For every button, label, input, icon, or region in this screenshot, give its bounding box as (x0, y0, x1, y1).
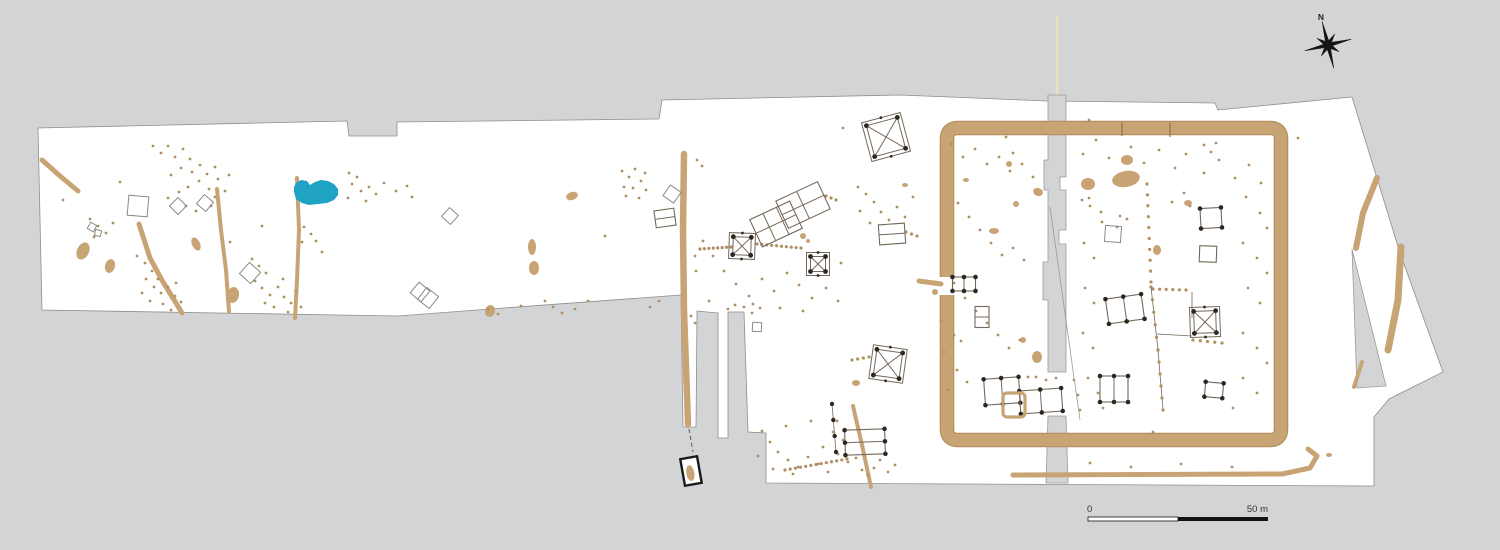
fence-dot (1147, 215, 1150, 218)
posthole-dot (315, 240, 318, 243)
post-dot (830, 402, 834, 406)
posthole-dot (1203, 144, 1206, 147)
pit (932, 289, 938, 295)
posthole-dot (625, 195, 628, 198)
structure-post-dot (823, 269, 828, 274)
posthole-dot (888, 219, 891, 222)
posthole-dot (1087, 377, 1090, 380)
posthole-dot (187, 186, 190, 189)
posthole-dot (552, 306, 555, 309)
posthole-dot (141, 292, 144, 295)
fence-dot (755, 242, 758, 245)
posthole-dot (842, 127, 845, 130)
posthole-dot (792, 473, 795, 476)
posthole-dot (708, 300, 711, 303)
fence-dot (1165, 288, 1168, 291)
posthole-dot (1101, 221, 1104, 224)
structure-post-dot (1098, 374, 1103, 379)
posthole-dot (604, 235, 607, 238)
posthole-dot (645, 189, 648, 192)
fence-dot (729, 245, 732, 248)
posthole-dot (1180, 463, 1183, 466)
fence-dot (1199, 339, 1202, 342)
posthole-dot (873, 201, 876, 204)
posthole-dot (206, 173, 209, 176)
posthole-dot (1021, 163, 1024, 166)
posthole-dot (1102, 407, 1105, 410)
fence-dot (1178, 288, 1181, 291)
posthole-dot (787, 459, 790, 462)
fence-dot (1220, 341, 1223, 344)
fence-dot (835, 459, 838, 462)
posthole-dot (224, 190, 227, 193)
posthole-dot (310, 233, 313, 236)
structure-post-dot (1126, 400, 1131, 405)
posthole-dot (979, 229, 982, 232)
posthole-dot (628, 176, 631, 179)
posthole-dot (119, 181, 122, 184)
posthole-dot (998, 156, 1001, 159)
posthole-dot (658, 300, 661, 303)
structure-post-dot (817, 274, 820, 277)
posthole-dot (1009, 170, 1012, 173)
posthole-dot (1143, 162, 1146, 165)
posthole-dot (497, 313, 500, 316)
posthole-dot (1093, 257, 1096, 260)
posthole-dot (199, 164, 202, 167)
posthole-dot (273, 306, 276, 309)
archaeological-site-plan: N 0 50 m (0, 0, 1500, 550)
posthole-dot (701, 165, 704, 168)
posthole-dot (761, 278, 764, 281)
posthole-dot (1092, 347, 1095, 350)
fence-dot (850, 358, 853, 361)
posthole-dot (1088, 119, 1091, 122)
scale-bar-white-segment (1088, 517, 1178, 521)
fence-dot (1148, 248, 1151, 251)
posthole-dot (950, 143, 953, 146)
fence-dot (840, 458, 843, 461)
fence-dot (1146, 204, 1149, 207)
fence-dot (795, 246, 798, 249)
fence-dot (799, 466, 802, 469)
pit (1006, 161, 1012, 167)
fence-dot (1160, 396, 1163, 399)
pit (529, 261, 539, 275)
posthole-dot (1119, 215, 1122, 218)
posthole-dot (544, 300, 547, 303)
posthole-dot (170, 174, 173, 177)
posthole-dot (1083, 242, 1086, 245)
posthole-dot (1130, 146, 1133, 149)
posthole-dot (752, 303, 755, 306)
posthole-dot (694, 255, 697, 258)
posthole-dot (1097, 392, 1100, 395)
posthole-dot (957, 202, 960, 205)
posthole-dot (265, 272, 268, 275)
posthole-dot (960, 340, 963, 343)
posthole-dot (1008, 347, 1011, 350)
posthole-dot (303, 226, 306, 229)
posthole-dot (1232, 407, 1235, 410)
posthole-dot (228, 174, 231, 177)
posthole-dot (694, 322, 697, 325)
posthole-dot (214, 166, 217, 169)
fence-dot (1206, 340, 1209, 343)
fence-dot (830, 460, 833, 463)
posthole-dot (896, 206, 899, 209)
posthole-dot (1089, 205, 1092, 208)
test-pit (680, 456, 701, 486)
posthole-dot (1012, 247, 1015, 250)
posthole-dot (587, 300, 590, 303)
posthole-dot (865, 193, 868, 196)
posthole-dot (962, 156, 965, 159)
posthole-dot (840, 262, 843, 265)
posthole-dot (947, 389, 950, 392)
posthole-dot (1089, 462, 1092, 465)
fence-dot (834, 198, 837, 201)
posthole-dot (968, 216, 971, 219)
posthole-dot (735, 283, 738, 286)
posthole-dot (1171, 201, 1174, 204)
fence-dot (1161, 408, 1164, 411)
posthole-dot (167, 197, 170, 200)
posthole-dot (855, 457, 858, 460)
posthole-dot (1297, 137, 1300, 140)
posthole-dot (383, 182, 386, 185)
posthole-dot (365, 200, 368, 203)
fence-dot (1171, 288, 1174, 291)
fence-dot (1154, 323, 1157, 326)
posthole-dot (1260, 182, 1263, 185)
posthole-dot (986, 322, 989, 325)
posthole-dot (712, 255, 715, 258)
fence-dot (783, 468, 786, 471)
structure-post-dot (817, 251, 820, 254)
posthole-dot (634, 168, 637, 171)
posthole-dot (623, 186, 626, 189)
posthole-dot (198, 180, 201, 183)
posthole-dot (1203, 172, 1206, 175)
fence-dot (707, 247, 710, 250)
posthole-dot (1189, 205, 1192, 208)
posthole-dot (1242, 242, 1245, 245)
posthole-dot (786, 272, 789, 275)
posthole-dot (1234, 177, 1237, 180)
posthole-dot (287, 311, 290, 314)
posthole-dot (93, 236, 96, 239)
scale-zero-label: 0 (1087, 504, 1092, 515)
posthole-dot (779, 307, 782, 310)
posthole-dot (1045, 379, 1048, 382)
posthole-dot (1055, 377, 1058, 380)
posthole-dot (1082, 332, 1085, 335)
fence-dot (1152, 311, 1155, 314)
fence-dot (856, 357, 859, 360)
fence-dot (867, 355, 870, 358)
posthole-dot (702, 240, 705, 243)
fence-dot (721, 246, 724, 249)
fence-dot (1156, 348, 1159, 351)
posthole-dot (170, 309, 173, 312)
posthole-dot (869, 222, 872, 225)
posthole-dot (1082, 153, 1085, 156)
pit (528, 239, 536, 255)
posthole-dot (1210, 151, 1213, 154)
fence-dot (1149, 270, 1152, 273)
fence-dot (799, 246, 802, 249)
posthole-dot (174, 156, 177, 159)
posthole-dot (195, 210, 198, 213)
posthole-dot (1152, 431, 1155, 434)
posthole-dot (153, 286, 156, 289)
posthole-dot (217, 178, 220, 181)
posthole-dot (734, 304, 737, 307)
pit (902, 183, 908, 187)
pit (806, 239, 810, 243)
structure-post-dot (1126, 374, 1131, 379)
pit (1032, 351, 1042, 363)
fence-dot (1159, 384, 1162, 387)
posthole-dot (561, 312, 564, 315)
posthole-dot (283, 296, 286, 299)
posthole-dot (723, 270, 726, 273)
posthole-dot (1256, 392, 1259, 395)
posthole-dot (191, 171, 194, 174)
pit (852, 380, 860, 386)
fence-dot (862, 356, 865, 359)
site-plan-page: N 0 50 m (0, 0, 1500, 550)
posthole-dot (974, 148, 977, 151)
posthole-dot (904, 216, 907, 219)
posthole-dot (1215, 142, 1218, 145)
posthole-dot (1093, 302, 1096, 305)
posthole-dot (847, 461, 850, 464)
posthole-dot (112, 222, 115, 225)
posthole-dot (1108, 157, 1111, 160)
posthole-dot (1259, 302, 1262, 305)
posthole-dot (321, 251, 324, 254)
posthole-dot (1027, 376, 1030, 379)
posthole-dot (640, 180, 643, 183)
posthole-dot (406, 185, 409, 188)
fence-dot (845, 457, 848, 460)
fence-dot (1149, 259, 1152, 262)
posthole-dot (1012, 152, 1015, 155)
posthole-dot (1266, 272, 1269, 275)
posthole-dot (997, 334, 1000, 337)
structure-post-dot (1098, 400, 1103, 405)
posthole-dot (887, 471, 890, 474)
fence-dot (820, 462, 823, 465)
posthole-dot (822, 446, 825, 449)
posthole-dot (748, 295, 751, 298)
posthole-dot (953, 334, 956, 337)
posthole-dot (773, 290, 776, 293)
posthole-dot (861, 469, 864, 472)
fence-dot (712, 247, 715, 250)
posthole-dot (751, 312, 754, 315)
fence-dot (770, 244, 773, 247)
fence-dot (829, 196, 832, 199)
fence-dot (716, 246, 719, 249)
posthole-dot (368, 186, 371, 189)
posthole-dot (520, 305, 523, 308)
posthole-dot (743, 306, 746, 309)
posthole-dot (940, 320, 943, 323)
pit (800, 233, 806, 239)
structure-post-dot (1112, 374, 1117, 379)
fence-dot (698, 247, 701, 250)
fence-dot (789, 467, 792, 470)
posthole-dot (621, 170, 624, 173)
posthole-dot (769, 441, 772, 444)
posthole-dot (160, 152, 163, 155)
posthole-dot (632, 187, 635, 190)
posthole-dot (867, 474, 870, 477)
fence-dot (910, 232, 913, 235)
posthole-dot (62, 199, 65, 202)
posthole-dot (1266, 227, 1269, 230)
fence-dot (1158, 288, 1161, 291)
pit (1326, 453, 1332, 457)
posthole-dot (638, 197, 641, 200)
posthole-dot (811, 297, 814, 300)
posthole-dot (644, 172, 647, 175)
posthole-dot (810, 420, 813, 423)
posthole-dot (837, 300, 840, 303)
posthole-dot (295, 290, 298, 293)
fence-dot (809, 464, 812, 467)
posthole-dot (356, 176, 359, 179)
posthole-dot (136, 255, 139, 258)
scale-bar-black-segment (1178, 517, 1268, 521)
fence-dot (804, 465, 807, 468)
structure-post-dot (823, 254, 828, 259)
posthole-dot (347, 197, 350, 200)
posthole-dot (162, 303, 165, 306)
posthole-dot (1256, 257, 1259, 260)
fence-dot (775, 244, 778, 247)
pit (1153, 245, 1161, 255)
posthole-dot (836, 420, 839, 423)
posthole-dot (827, 471, 830, 474)
posthole-dot (1005, 136, 1008, 139)
posthole-dot (157, 278, 160, 281)
posthole-dot (1158, 149, 1161, 152)
structure-post-dot (973, 275, 978, 280)
posthole-dot (1247, 287, 1250, 290)
posthole-dot (1183, 192, 1186, 195)
posthole-dot (772, 468, 775, 471)
posthole-dot (1100, 211, 1103, 214)
fence-dot (1184, 288, 1187, 291)
posthole-dot (277, 286, 280, 289)
fence-dot (1213, 341, 1216, 344)
structure-post-dot (808, 269, 813, 274)
structure-post-dot (973, 289, 978, 294)
posthole-dot (956, 369, 959, 372)
fence-dot (1148, 237, 1151, 240)
fence-dot (1146, 193, 1149, 196)
posthole-dot (264, 302, 267, 305)
fence-dot (1147, 226, 1150, 229)
posthole-dot (152, 145, 155, 148)
plan-layers (0, 0, 1500, 550)
posthole-dot (1245, 196, 1248, 199)
posthole-dot (986, 163, 989, 166)
fence-dot (790, 246, 793, 249)
fence-dot (780, 245, 783, 248)
posthole-dot (761, 430, 764, 433)
posthole-dot (395, 190, 398, 193)
fence-dot (1157, 360, 1160, 363)
posthole-dot (964, 297, 967, 300)
posthole-dot (411, 196, 414, 199)
posthole-dot (1218, 159, 1221, 162)
posthole-dot (757, 455, 760, 458)
fence-dot (915, 234, 918, 237)
posthole-dot (360, 190, 363, 193)
posthole-dot (105, 232, 108, 235)
posthole-dot (1130, 466, 1133, 469)
posthole-dot (189, 158, 192, 161)
posthole-dot (1242, 377, 1245, 380)
posthole-dot (690, 315, 693, 318)
posthole-dot (777, 451, 780, 454)
fence-dot (725, 246, 728, 249)
posthole-dot (214, 196, 217, 199)
north-label: N (1318, 12, 1324, 22)
posthole-dot (1248, 164, 1251, 167)
posthole-dot (290, 302, 293, 305)
posthole-dot (759, 307, 762, 310)
posthole-dot (89, 218, 92, 221)
posthole-dot (1126, 218, 1129, 221)
structure-post-dot (1112, 400, 1117, 405)
posthole-dot (151, 270, 154, 273)
posthole-dot (879, 459, 882, 462)
structure-post-dot (808, 254, 813, 259)
posthole-dot (269, 294, 272, 297)
fence-dot (1155, 336, 1158, 339)
posthole-dot (375, 193, 378, 196)
posthole-dot (649, 306, 652, 309)
posthole-dot (1032, 176, 1035, 179)
posthole-dot (229, 241, 232, 244)
posthole-dot (258, 265, 261, 268)
posthole-dot (807, 456, 810, 459)
posthole-dot (351, 183, 354, 186)
posthole-dot (695, 270, 698, 273)
posthole-dot (1174, 167, 1177, 170)
posthole-dot (912, 196, 915, 199)
structure-post-dot (962, 289, 967, 294)
fence-dot (814, 463, 817, 466)
posthole-dot (1019, 339, 1022, 342)
structure-post-dot (962, 275, 967, 280)
posthole-dot (261, 287, 264, 290)
posthole-dot (1088, 197, 1091, 200)
posthole-dot (802, 310, 805, 313)
fence-dot (794, 467, 797, 470)
posthole-dot (175, 282, 178, 285)
posthole-dot (180, 167, 183, 170)
scale-end-label: 50 m (1247, 504, 1268, 515)
posthole-dot (1035, 376, 1038, 379)
posthole-dot (144, 262, 147, 265)
